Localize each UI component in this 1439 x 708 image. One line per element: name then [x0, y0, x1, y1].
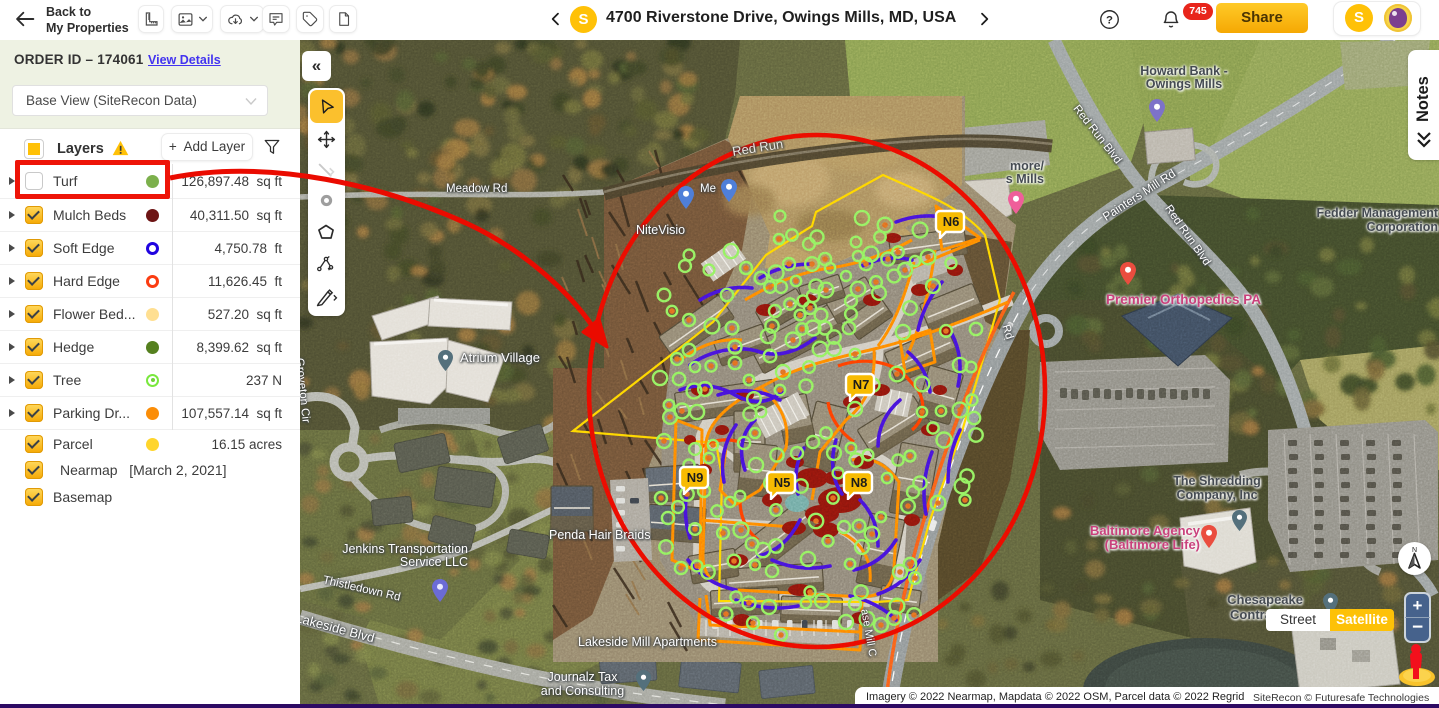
svg-text:?: ? [1106, 14, 1113, 26]
svg-text:N5: N5 [774, 475, 791, 490]
svg-text:N7: N7 [853, 377, 870, 392]
svg-text:N9: N9 [687, 470, 704, 485]
svg-text:N8: N8 [851, 475, 868, 490]
svg-text:N6: N6 [943, 214, 960, 229]
